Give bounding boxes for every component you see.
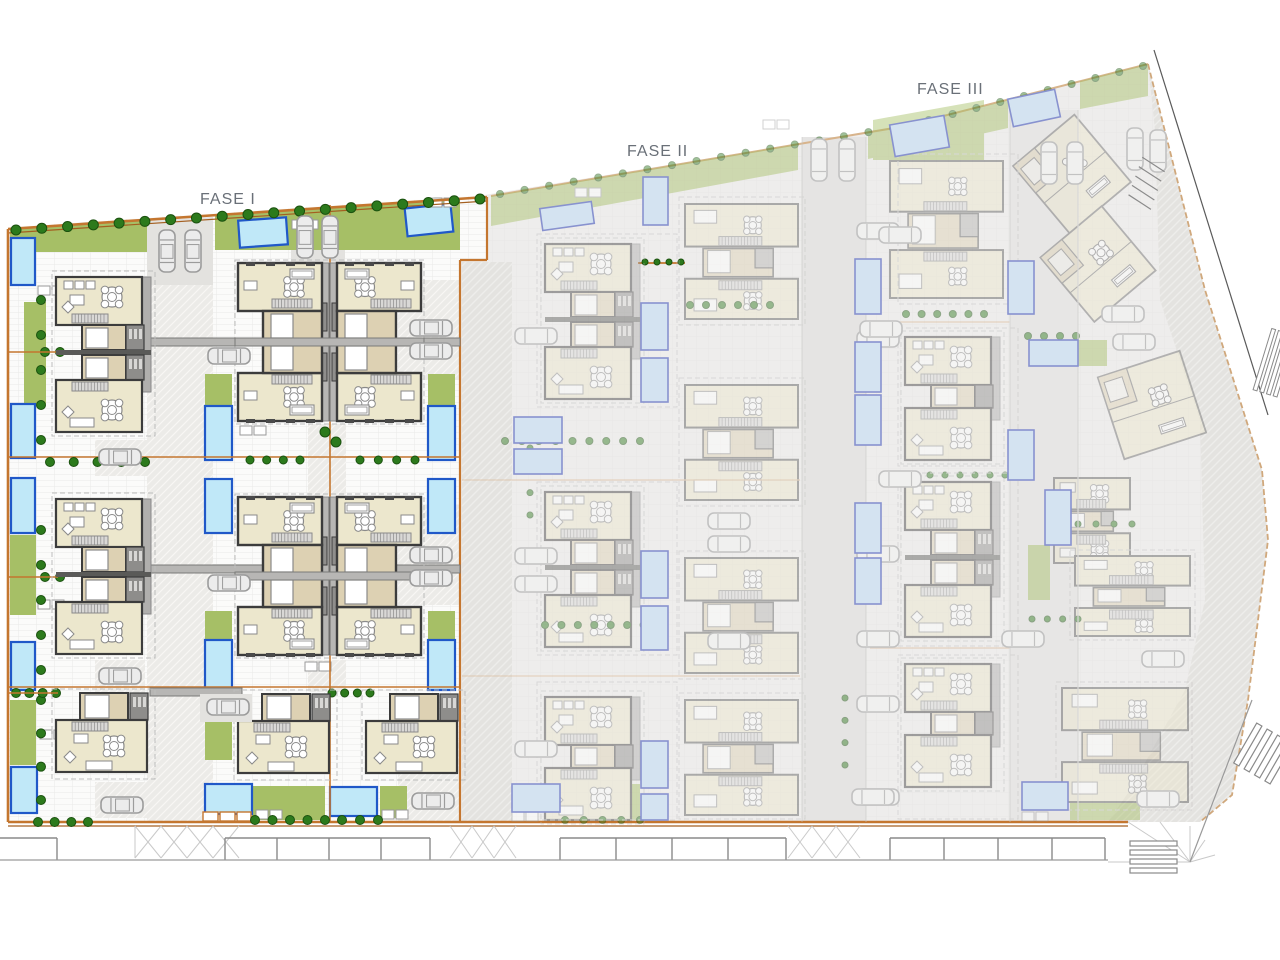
svg-text:FASE II: FASE II [627, 143, 688, 160]
svg-text:FASE I: FASE I [200, 191, 256, 208]
svg-text:FASE III: FASE III [917, 81, 984, 98]
